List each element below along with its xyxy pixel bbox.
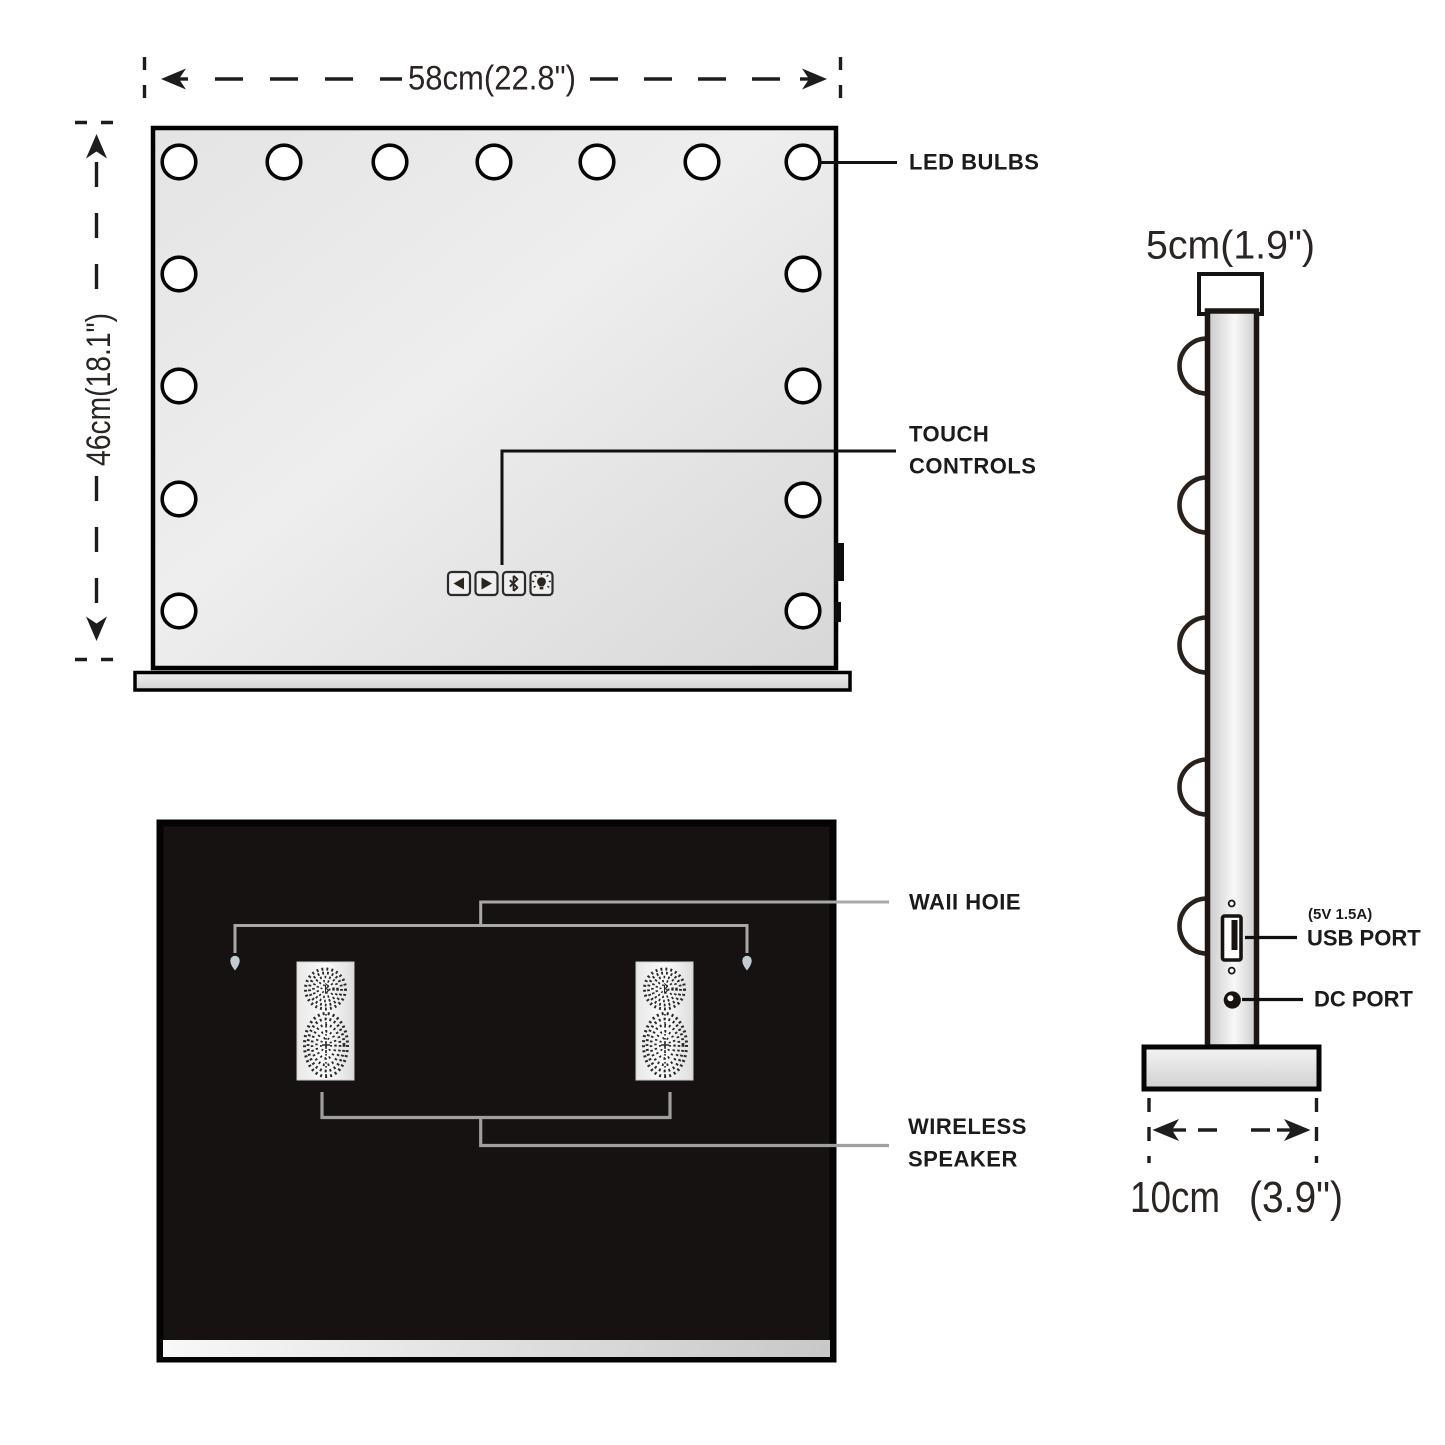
svg-text:(3.9"): (3.9") (1249, 1173, 1343, 1222)
svg-text:DC PORT: DC PORT (1314, 987, 1414, 1012)
svg-text:5cm(1.9"): 5cm(1.9") (1146, 224, 1315, 268)
svg-text:(5V 1.5A): (5V 1.5A) (1308, 906, 1372, 923)
svg-text:WAII HOIE: WAII HOIE (909, 890, 1021, 915)
svg-text:SPEAKER: SPEAKER (908, 1147, 1018, 1172)
svg-text:TOUCH: TOUCH (909, 422, 989, 447)
svg-text:58cm(22.8"): 58cm(22.8") (408, 60, 576, 98)
svg-text:46cm(18.1"): 46cm(18.1") (80, 313, 118, 466)
svg-text:USB PORT: USB PORT (1307, 926, 1421, 951)
svg-text:WIRELESS: WIRELESS (908, 1114, 1027, 1139)
svg-text:LED BULBS: LED BULBS (909, 150, 1039, 175)
svg-text:CONTROLS: CONTROLS (909, 454, 1036, 479)
svg-text:10cm: 10cm (1130, 1173, 1220, 1222)
